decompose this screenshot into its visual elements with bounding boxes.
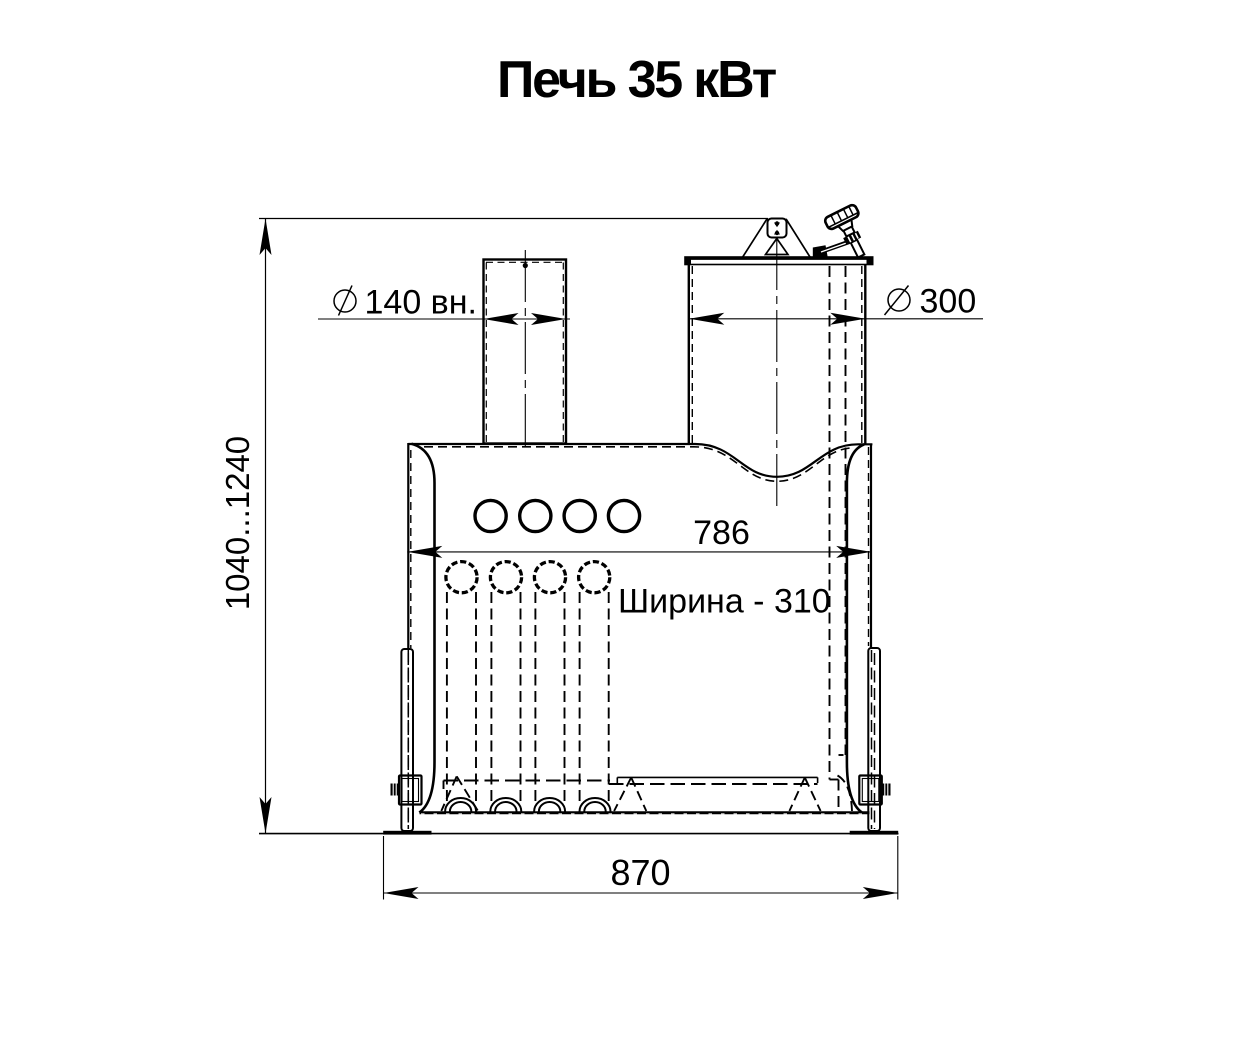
svg-text:786: 786 [693,514,750,552]
svg-text:870: 870 [610,852,670,893]
svg-text:140 вн.: 140 вн. [365,284,477,322]
svg-text:1040...1240: 1040...1240 [219,436,256,610]
svg-text:300: 300 [920,283,977,321]
svg-text:Ширина - 310: Ширина - 310 [618,583,831,621]
svg-text:Печь 35 кВт: Печь 35 кВт [497,51,777,109]
